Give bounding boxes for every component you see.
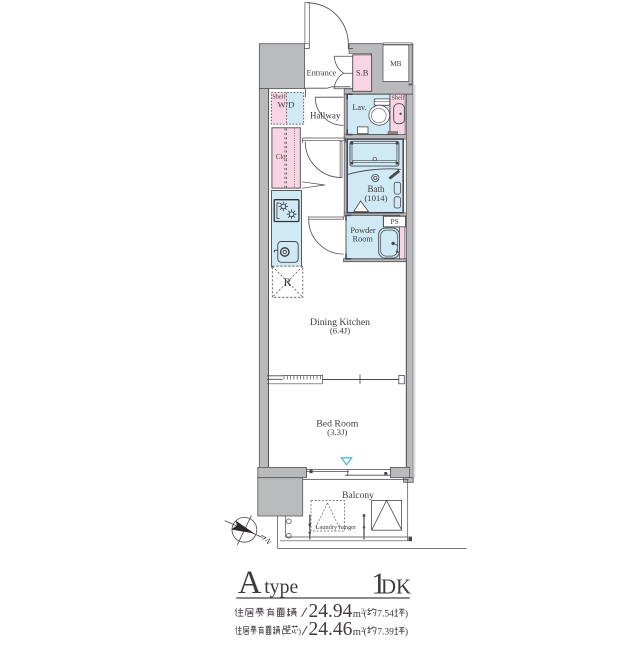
svg-text:A: A [238, 565, 262, 601]
svg-text:Laundry hanger: Laundry hanger [316, 524, 358, 531]
svg-text:MB: MB [390, 60, 401, 68]
svg-text:Clo.: Clo. [276, 154, 288, 161]
svg-text:7.39: 7.39 [377, 628, 394, 638]
svg-text:7.54: 7.54 [377, 609, 394, 619]
svg-text:type: type [264, 576, 298, 598]
svg-text:R: R [284, 277, 292, 289]
svg-text:S.B: S.B [356, 67, 369, 77]
svg-text:(: ( [364, 608, 367, 619]
svg-text:(3.3J): (3.3J) [327, 427, 347, 437]
svg-text:Room: Room [353, 235, 374, 244]
svg-text:(1014): (1014) [365, 193, 388, 203]
svg-text:Lav.: Lav. [352, 103, 366, 112]
svg-text:): ) [298, 627, 301, 636]
svg-text:): ) [405, 627, 408, 638]
svg-text:24.46: 24.46 [309, 619, 353, 640]
svg-text:Entrance: Entrance [307, 68, 337, 77]
svg-text:Hallway: Hallway [310, 111, 341, 121]
svg-text:): ) [405, 608, 408, 619]
svg-text:Shelf: Shelf [391, 95, 405, 102]
svg-text:Balcony: Balcony [342, 491, 374, 501]
svg-text:(6.4J): (6.4J) [330, 326, 350, 336]
svg-text:DK: DK [381, 575, 411, 598]
svg-text:PS: PS [390, 217, 398, 226]
svg-text:W/D: W/D [277, 100, 294, 110]
svg-text:(: ( [364, 627, 367, 638]
